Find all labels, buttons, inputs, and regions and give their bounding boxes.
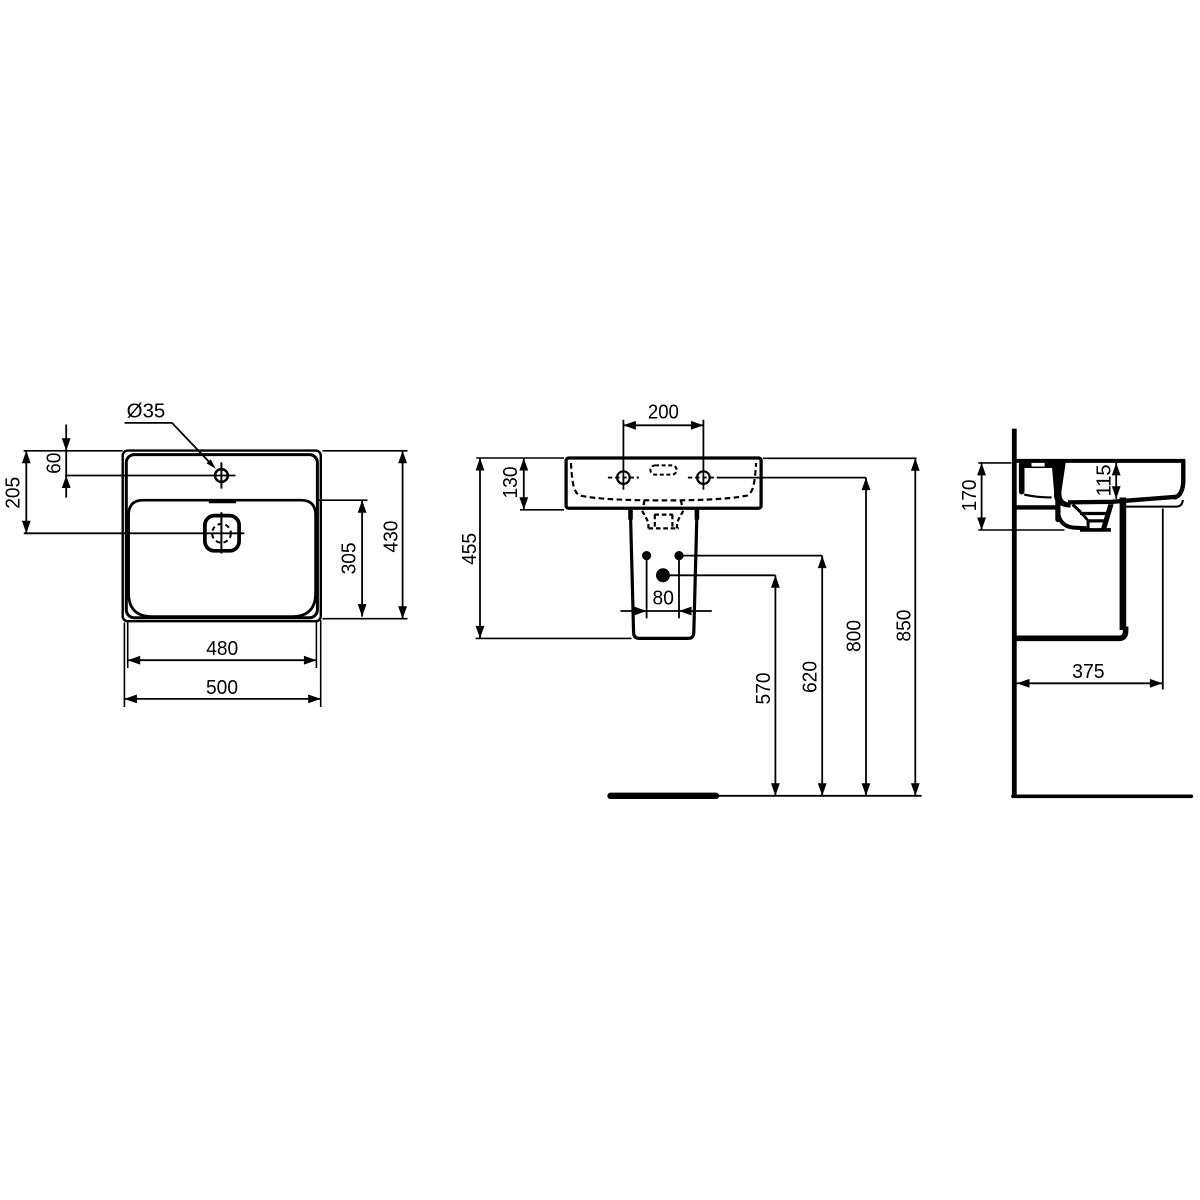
- svg-text:60: 60: [43, 453, 65, 474]
- svg-text:570: 570: [753, 673, 775, 705]
- svg-text:305: 305: [338, 542, 360, 574]
- svg-text:800: 800: [843, 620, 865, 652]
- svg-text:170: 170: [959, 479, 981, 511]
- svg-text:80: 80: [653, 587, 674, 609]
- svg-text:620: 620: [800, 661, 822, 693]
- svg-text:Ø35: Ø35: [127, 400, 166, 422]
- svg-text:200: 200: [648, 401, 679, 423]
- svg-text:375: 375: [1072, 661, 1105, 683]
- svg-text:500: 500: [206, 677, 238, 699]
- svg-text:480: 480: [206, 638, 238, 660]
- svg-text:130: 130: [500, 467, 522, 499]
- svg-text:205: 205: [2, 477, 24, 509]
- svg-text:115: 115: [1094, 464, 1116, 496]
- svg-text:850: 850: [893, 610, 915, 642]
- svg-text:455: 455: [459, 533, 481, 565]
- svg-text:430: 430: [380, 521, 402, 553]
